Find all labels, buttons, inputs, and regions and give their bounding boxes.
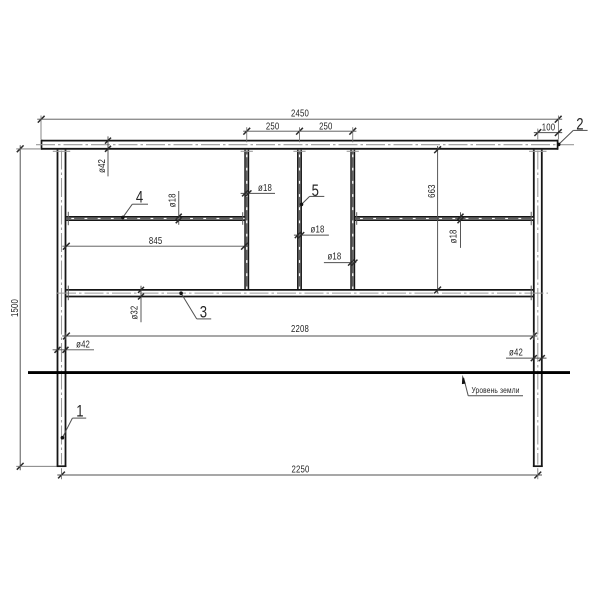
svg-text:ø18: ø18 [311, 224, 325, 235]
svg-text:3: 3 [200, 304, 207, 322]
svg-text:845: 845 [149, 235, 162, 246]
svg-text:2250: 2250 [292, 463, 310, 474]
svg-text:ø42: ø42 [509, 347, 523, 358]
svg-text:250: 250 [319, 121, 332, 132]
svg-text:ø18: ø18 [327, 251, 341, 262]
svg-text:ø18: ø18 [167, 193, 178, 207]
svg-text:1: 1 [76, 403, 83, 421]
svg-text:2: 2 [576, 116, 583, 134]
svg-text:ø18: ø18 [258, 182, 272, 193]
svg-text:ø42: ø42 [96, 159, 107, 173]
svg-text:2450: 2450 [291, 107, 309, 118]
svg-text:ø32: ø32 [129, 306, 140, 320]
svg-text:Уровень земли: Уровень земли [471, 385, 519, 395]
svg-text:ø18: ø18 [448, 229, 459, 243]
svg-text:4: 4 [136, 189, 143, 207]
svg-text:5: 5 [312, 183, 319, 201]
svg-text:250: 250 [266, 121, 279, 132]
svg-text:100: 100 [542, 122, 555, 133]
svg-text:663: 663 [426, 184, 437, 197]
svg-text:ø42: ø42 [76, 339, 90, 350]
svg-text:1500: 1500 [9, 299, 20, 317]
svg-text:2208: 2208 [291, 323, 309, 334]
